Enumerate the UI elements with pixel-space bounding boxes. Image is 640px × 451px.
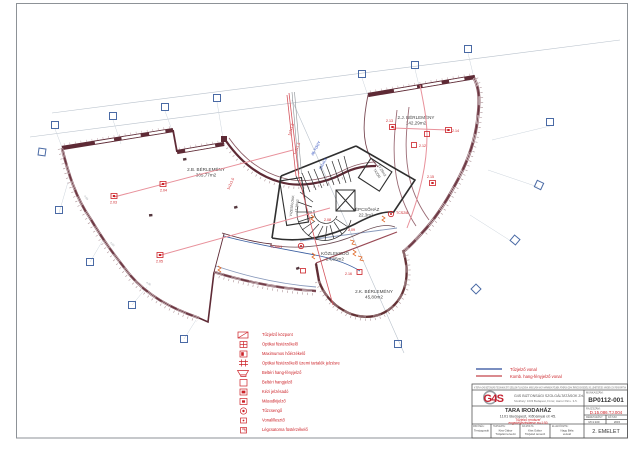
svg-text:17,28m2: 17,28m2 <box>294 199 300 213</box>
svg-text:2.14: 2.14 <box>452 129 459 133</box>
svg-text:MÉRETARÁNY:: MÉRETARÁNY: <box>586 416 603 419</box>
svg-text:DÁTUM:: DÁTUM: <box>608 416 617 419</box>
svg-text:2.12: 2.12 <box>419 144 426 148</box>
svg-text:BP0112-001: BP0112-001 <box>588 397 624 404</box>
svg-text:Optikai füstérzékelő: Optikai füstérzékelő <box>262 342 299 347</box>
svg-text:2.16: 2.16 <box>345 272 352 276</box>
svg-text:TCS6/1: TCS6/1 <box>270 245 282 249</box>
svg-text:2.04: 2.04 <box>160 189 167 193</box>
svg-text:4,50: 4,50 <box>109 241 116 248</box>
svg-text:vezető: vezető <box>563 432 572 436</box>
svg-text:24,85m2: 24,85m2 <box>326 257 344 262</box>
svg-text:Komb. hang-fényjelző vonal: Komb. hang-fényjelző vonal <box>510 374 562 379</box>
svg-text:LÉPCSŐHÁZ: LÉPCSŐHÁZ <box>353 207 380 212</box>
svg-text:KÖZLEKEDŐ: KÖZLEKEDŐ <box>321 250 350 256</box>
svg-text:22,3m2: 22,3m2 <box>359 213 374 218</box>
svg-text:2.K. BÉRLEMÉNY: 2.K. BÉRLEMÉNY <box>355 288 393 294</box>
svg-text:engedélyezésiterve m=1:50: engedélyezésiterve m=1:50 <box>508 421 547 425</box>
svg-text:2x2x0,8: 2x2x0,8 <box>318 157 327 170</box>
svg-text:2. EMELET: 2. EMELET <box>592 429 620 435</box>
svg-text:Légcsatorna füstérzékelő: Légcsatorna füstérzékelő <box>262 427 308 432</box>
svg-text:Tűzjelső tervező: Tűzjelső tervező <box>495 432 516 436</box>
svg-text:Tűzjelző vonal: Tűzjelző vonal <box>510 367 537 372</box>
svg-text:Beltéri hangjelző: Beltéri hangjelző <box>262 380 293 385</box>
svg-text:G4S: G4S <box>484 393 504 405</box>
svg-text:2015: 2015 <box>614 420 621 424</box>
svg-text:2.05: 2.05 <box>156 260 163 264</box>
svg-text:1x2x1,5: 1x2x1,5 <box>226 177 235 190</box>
svg-text:Beltéri hang-fényjelző: Beltéri hang-fényjelző <box>262 370 302 375</box>
svg-text:2.03: 2.03 <box>110 201 117 205</box>
svg-text:Tervjogosult: Tervjogosult <box>474 429 489 433</box>
svg-text:2.J. BÉRLEMÉNY: 2.J. BÉRLEMÉNY <box>397 114 434 120</box>
svg-text:Tűzcsengő: Tűzcsengő <box>262 408 283 413</box>
svg-text:Tűzjelző központ: Tűzjelző központ <box>262 332 294 337</box>
svg-text:D.15.086.TJ.004: D.15.086.TJ.004 <box>590 410 623 415</box>
svg-text:A TERV A G4S BIZTONSÁGI TECHNI: A TERV A G4S BIZTONSÁGI TECHNIKAI ZRT. S… <box>474 385 626 390</box>
svg-text:2.13: 2.13 <box>386 119 393 123</box>
svg-text:Tűzjelső tervező: Tűzjelső tervező <box>525 432 546 436</box>
svg-text:G4S BIZTONSÁGI SZOLGÁLTATÁSOK: G4S BIZTONSÁGI SZOLGÁLTATÁSOK Zrt. <box>514 394 584 398</box>
svg-text:2.08: 2.08 <box>324 218 331 222</box>
svg-text:M=1:100: M=1:100 <box>589 420 600 424</box>
svg-text:MUNKASZÁM:: MUNKASZÁM: <box>586 391 604 395</box>
svg-text:45,80m2: 45,80m2 <box>365 295 383 300</box>
svg-text:2.15: 2.15 <box>427 175 434 179</box>
svg-text:Optikai füstérzékelő üzemi tar: Optikai füstérzékelő üzemi tartalék jelz… <box>262 361 341 366</box>
svg-text:Maximumos hőérzékelő: Maximumos hőérzékelő <box>262 351 306 356</box>
svg-text:142,29m2: 142,29m2 <box>406 121 427 126</box>
svg-text:TCS2/8: TCS2/8 <box>396 211 408 215</box>
svg-text:Székhely: 1033 Budapest, Fő té: Székhely: 1033 Budapest, Fő tér, Harrer … <box>514 399 578 403</box>
svg-text:4,50: 4,50 <box>145 280 152 286</box>
svg-text:Vonalillesztő: Vonalillesztő <box>262 418 285 423</box>
svg-text:Kézi jelzésadó: Kézi jelzésadó <box>262 389 289 394</box>
svg-text:4,50: 4,50 <box>83 194 89 201</box>
svg-text:2.09: 2.09 <box>348 228 355 232</box>
svg-text:Másodkijelző: Másodkijelző <box>262 399 286 404</box>
